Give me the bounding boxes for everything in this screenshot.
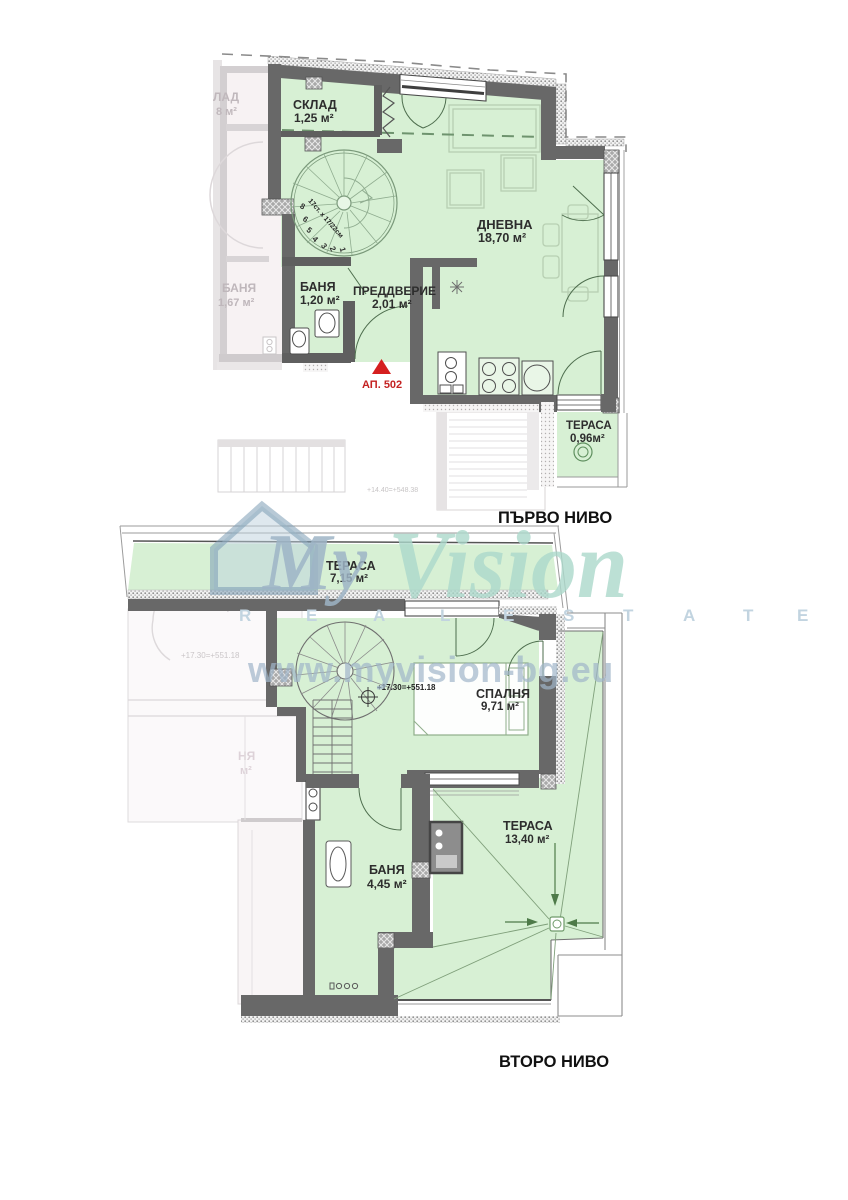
svg-text:ТЕРАСА: ТЕРАСА: [566, 420, 612, 432]
svg-text:8 м²: 8 м²: [216, 106, 237, 118]
svg-text:ДНЕВНА: ДНЕВНА: [477, 217, 533, 232]
svg-text:ВТОРО НИВО: ВТОРО НИВО: [499, 1053, 609, 1071]
svg-text:T: T: [743, 606, 754, 625]
svg-text:+14.40=+548.38: +14.40=+548.38: [367, 487, 418, 494]
svg-text:+17.30=+551.18: +17.30=+551.18: [181, 651, 240, 660]
svg-text:БАНЯ: БАНЯ: [222, 281, 256, 295]
svg-text:ЛАД: ЛАД: [213, 90, 240, 104]
svg-text:2,01 м²: 2,01 м²: [372, 297, 412, 311]
svg-text:13,40 м²: 13,40 м²: [505, 834, 549, 846]
svg-text:E: E: [503, 606, 514, 625]
svg-text:E: E: [306, 606, 317, 625]
svg-text:A: A: [683, 606, 695, 625]
svg-text:АП. 502: АП. 502: [362, 379, 402, 391]
svg-text:4,45 м²: 4,45 м²: [367, 877, 407, 891]
svg-text:ПРЕДДВЕРИЕ: ПРЕДДВЕРИЕ: [353, 284, 436, 298]
svg-text:My: My: [261, 519, 367, 607]
svg-text:БАНЯ: БАНЯ: [300, 280, 336, 294]
svg-text:м²: м²: [240, 765, 252, 777]
svg-text:БАНЯ: БАНЯ: [369, 863, 405, 877]
svg-text:ТЕРАСА: ТЕРАСА: [503, 819, 553, 833]
svg-text:www.myvision-bg.eu: www.myvision-bg.eu: [247, 649, 614, 690]
svg-text:S: S: [563, 606, 574, 625]
svg-text:1,20 м²: 1,20 м²: [300, 293, 340, 307]
svg-text:НЯ: НЯ: [238, 749, 255, 763]
svg-text:T: T: [623, 606, 634, 625]
svg-text:9,71 м²: 9,71 м²: [481, 701, 519, 713]
svg-text:1,25 м²: 1,25 м²: [294, 111, 334, 125]
svg-text:E: E: [797, 606, 808, 625]
svg-text:18,70 м²: 18,70 м²: [478, 231, 526, 245]
svg-text:R: R: [239, 606, 251, 625]
svg-text:СКЛАД: СКЛАД: [293, 98, 337, 112]
svg-text:A: A: [373, 606, 385, 625]
svg-text:L: L: [440, 606, 450, 625]
svg-text:1,67 м²: 1,67 м²: [218, 297, 255, 309]
svg-text:Vision: Vision: [388, 511, 628, 618]
svg-text:0,96м²: 0,96м²: [570, 433, 605, 445]
